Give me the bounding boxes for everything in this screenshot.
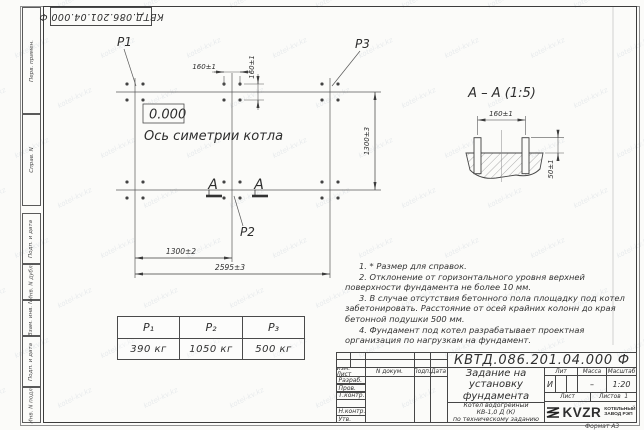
section-letter-left: А — [207, 177, 218, 193]
kvzr-logo: KVZR КОТЕЛЬНЫЙ ЗАВОД РЭП — [546, 405, 636, 420]
dim-section-bolt-spacing: 160±1 — [489, 110, 513, 118]
sig-col-podp — [414, 376, 431, 423]
note-4: 4. Фундамент под котел разрабатывает про… — [345, 325, 637, 346]
row-utv: Утв. — [336, 415, 366, 423]
org-line-2: ЗАВОД РЭП — [604, 412, 632, 417]
boiler-symmetry-axis-label: Ось симетрии котла — [144, 129, 283, 144]
dim-bolt-protrusion: 50±1 — [547, 159, 555, 178]
load-point-p3: P3 — [355, 37, 370, 51]
sig-col-dokum — [365, 376, 415, 423]
section-title: А – А (1:5) — [467, 86, 536, 101]
dim-width-total: 2595±3 — [215, 263, 245, 272]
mass-value: – — [577, 375, 607, 393]
loads-header-p1: Р₁ — [117, 316, 180, 339]
kvzr-logo-mark — [546, 406, 560, 419]
load-point-p2: P2 — [240, 225, 255, 239]
org-line-1: КОТЕЛЬНЫЙ — [604, 407, 635, 412]
subtitle-line-2: КВ-1,0 Д (К) — [453, 409, 539, 416]
logo-text: KVZR — [563, 405, 602, 420]
drawing-subtitle: Котел водогрейный КВ-1,0 Д (К) по технич… — [447, 402, 545, 423]
doc-number: КВТД.086.201.04.000 Ф — [447, 352, 637, 368]
anchor-bolt-left — [474, 138, 481, 174]
sheets-label: Листов — [599, 394, 621, 400]
dim-width-half: 1300±2 — [166, 247, 196, 256]
section-letter-right: А — [253, 177, 264, 193]
foundation-plan — [116, 49, 381, 278]
dim-length-side: 1300±3 — [363, 127, 371, 155]
note-2: 2. Отклонение от горизонтального уровня … — [345, 272, 637, 293]
loads-header-p3: Р₃ — [242, 316, 305, 339]
note-3: 3. В случае отсутствия бетонного пола пл… — [345, 293, 637, 325]
loads-value-p2: 1050 кг — [179, 338, 243, 360]
note-1: 1. * Размер для справок. — [345, 261, 637, 272]
loads-value-p3: 500 кг — [242, 338, 305, 360]
elevation-value: 0.000 — [149, 108, 186, 123]
title-block: Изм. Лист N докум. Подп. Дата Разраб. Пр… — [336, 352, 638, 423]
load-point-p1: P1 — [117, 35, 132, 49]
loads-table: Р₁ Р₂ Р₃ 390 кг 1050 кг 500 кг — [117, 316, 305, 360]
org-cell: KVZR КОТЕЛЬНЫЙ ЗАВОД РЭП — [544, 401, 637, 423]
subtitle-line-1: Котел водогрейный — [453, 402, 539, 409]
leader-p3 — [332, 51, 360, 86]
subtitle-line-3: по техническому заданию — [453, 416, 539, 423]
dim-bolt-spacing-v: 160±1 — [248, 55, 256, 79]
drawing-title: Задание на установку фундамента — [447, 367, 545, 403]
leader-p2 — [234, 196, 243, 226]
loads-header-p2: Р₂ — [179, 316, 243, 339]
leader-p1 — [124, 49, 136, 86]
format-label: Формат А3 — [585, 423, 644, 430]
sheets-value: 1 — [624, 394, 628, 400]
anchor-bolt-right — [522, 138, 529, 174]
loads-value-p1: 390 кг — [117, 338, 180, 360]
section-view: А – А (1:5) 160±1 50±1 — [466, 86, 564, 182]
notes-block: 1. * Размер для справок. 2. Отклонение о… — [345, 261, 637, 346]
dim-bolt-spacing-h: 160±1 — [192, 63, 216, 71]
scale-value: 1:20 — [606, 375, 637, 393]
org-name: КОТЕЛЬНЫЙ ЗАВОД РЭП — [604, 407, 635, 418]
drawing-sheet: kotel-kv.kzkotel-kv.kzkotel-kv.kzkotel-k… — [0, 0, 644, 430]
sig-col-data — [430, 376, 448, 423]
